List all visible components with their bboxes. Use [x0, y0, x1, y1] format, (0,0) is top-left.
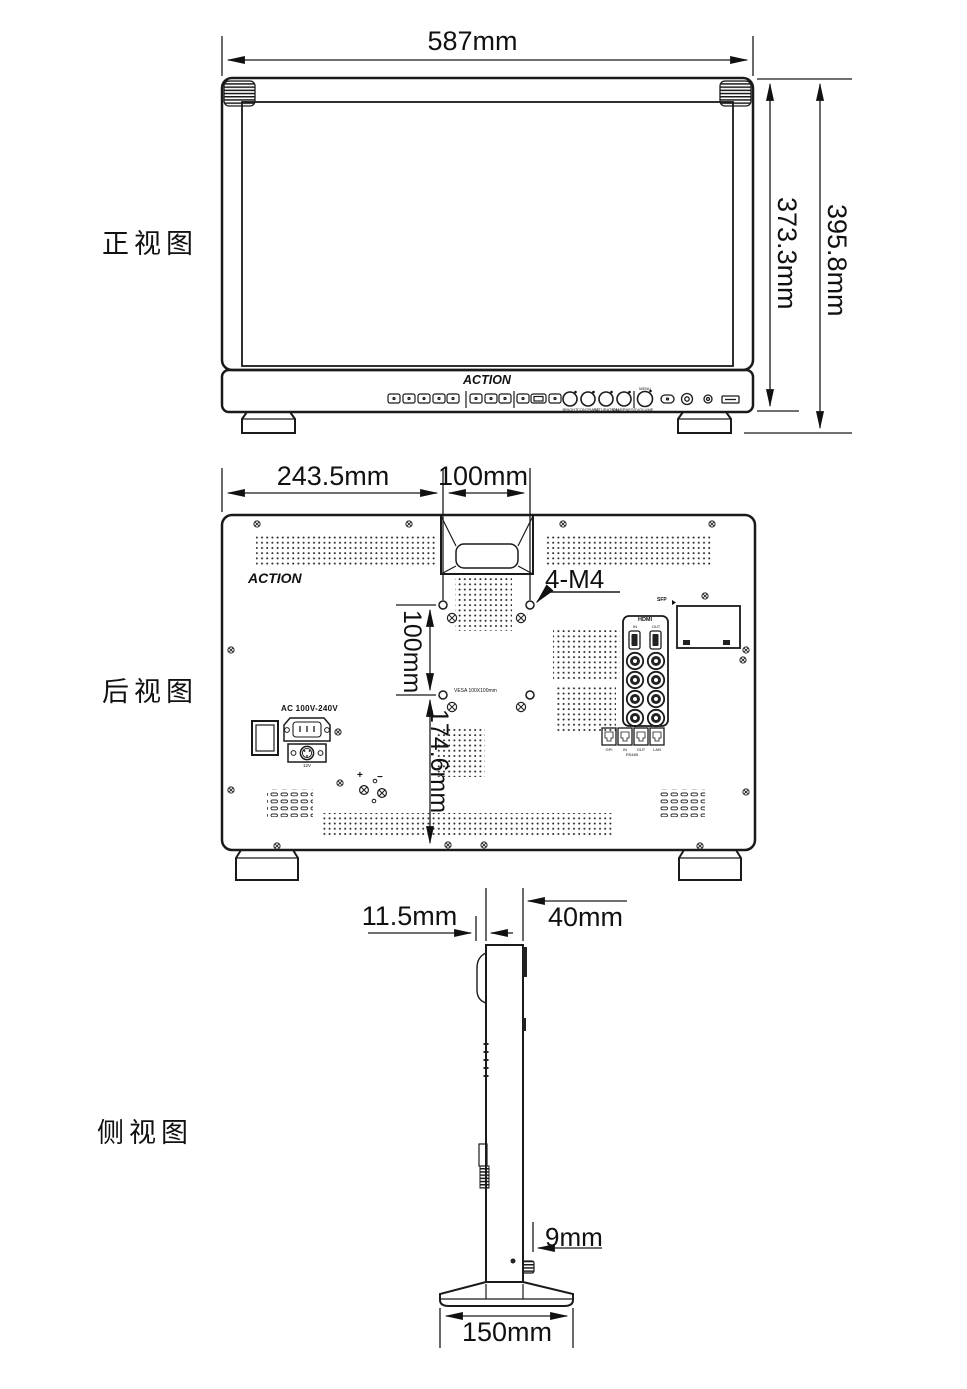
jack-label-lan: LAN [649, 748, 665, 752]
side-dim-depth: 40mm [533, 904, 638, 931]
dc-inlet [288, 744, 326, 762]
hdmi-label: HDMI [625, 618, 665, 624]
rear-dim-vesa-height: 100mm [399, 606, 424, 698]
front-brand-logo: ACTION [437, 374, 537, 387]
front-corner-pad-right [720, 81, 751, 106]
side-base [440, 1282, 573, 1306]
rear-handle [441, 516, 533, 574]
technical-drawing-page: 正视图 587mm 373.3mm 395.8mm ACTION MENU BR… [0, 0, 967, 1389]
front-corner-pad-left [224, 81, 255, 106]
knob-label-volume: VOLUME [628, 408, 662, 412]
side-screw [511, 1259, 516, 1264]
rear-vents [256, 535, 712, 837]
rear-view-title: 后视图 [102, 679, 198, 706]
bnc-connectors [627, 653, 664, 726]
hdmi-out-label: OUT [646, 625, 666, 629]
side-dim-knob: 9mm [545, 1224, 603, 1250]
dc-power-label: 12V [297, 764, 317, 769]
front-view-drawing [222, 36, 852, 433]
vesa-screw-note: 4-M4 [545, 566, 604, 592]
rear-dim-vesa-to-bottom: 174.6mm [426, 697, 451, 825]
front-feet [242, 412, 731, 433]
front-dim-width: 587mm [390, 28, 555, 55]
side-knob [480, 1166, 489, 1188]
hdmi-ports [629, 631, 661, 649]
jack-label-gpi: GPI [601, 748, 617, 752]
rear-brand-logo: ACTION [248, 571, 302, 585]
rear-dim-vesa-width: 100mm [430, 463, 536, 490]
sfp-slot [672, 600, 740, 648]
hdmi-in-label: IN [625, 625, 645, 629]
ac-inlet [284, 718, 330, 741]
sfp-label: SFP [657, 598, 667, 603]
side-view-title: 侧视图 [97, 1120, 193, 1147]
front-view-title: 正视图 [102, 231, 198, 258]
front-knobs [563, 390, 653, 408]
side-profile-body [486, 945, 523, 1282]
sfp-arrow [672, 600, 676, 605]
jack-sub-label: RS485 [614, 753, 650, 757]
front-bezel-outline [222, 78, 753, 370]
side-dim-base: 150mm [437, 1319, 577, 1346]
front-dim-total-height: 395.8mm [823, 170, 850, 350]
rear-speaker-right [658, 789, 705, 817]
menu-knob-label: MENU [631, 387, 659, 391]
terminal-minus-label: − [377, 773, 383, 783]
ac-power-label: AC 100V-240V [281, 705, 338, 713]
front-dim-body-height: 373.3mm [773, 168, 800, 338]
front-buttons [388, 391, 561, 408]
terminal-plus-label: + [357, 771, 363, 781]
rear-speaker-left [267, 789, 313, 817]
side-rear-knob [523, 1261, 534, 1273]
rear-dim-left-to-vesa: 243.5mm [238, 463, 428, 490]
vesa-pattern-label: VESA 100X100mm [454, 689, 497, 694]
rear-view-drawing [222, 468, 755, 880]
side-view-drawing [368, 888, 627, 1348]
rear-feet [236, 850, 741, 880]
front-screen [242, 102, 733, 366]
side-dim-bezel: 11.5mm [352, 903, 467, 930]
front-side-ports [661, 394, 739, 405]
power-switch [252, 721, 278, 755]
side-front-lip [477, 953, 486, 1003]
